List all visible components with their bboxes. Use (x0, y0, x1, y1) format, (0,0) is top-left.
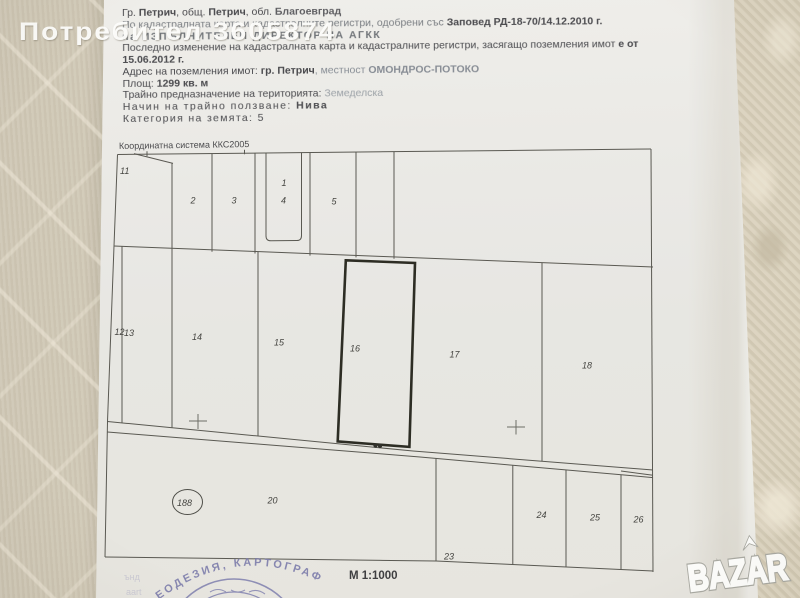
svg-text:14: 14 (192, 332, 202, 342)
svg-text:2: 2 (190, 196, 196, 206)
svg-text:BAZAR: BAZAR (686, 546, 790, 595)
svg-text:15: 15 (274, 338, 285, 348)
svg-text:аart: аart (126, 587, 142, 597)
svg-text:М 1:1000: М 1:1000 (349, 570, 398, 582)
svg-text:5: 5 (332, 197, 338, 207)
svg-text:17: 17 (450, 350, 461, 360)
svg-text:11: 11 (120, 166, 129, 176)
svg-text:12: 12 (115, 327, 125, 337)
svg-text:16: 16 (350, 344, 360, 354)
svg-text:24: 24 (536, 510, 547, 520)
svg-text:1: 1 (282, 178, 287, 188)
svg-text:ънд: ънд (124, 572, 141, 582)
svg-text:25: 25 (589, 513, 601, 523)
svg-text:4: 4 (281, 196, 286, 206)
svg-text:13: 13 (124, 328, 134, 338)
svg-text:18: 18 (582, 361, 592, 371)
svg-text:3: 3 (232, 196, 237, 206)
svg-text:23: 23 (443, 552, 454, 562)
svg-text:188: 188 (177, 498, 192, 508)
svg-text:20: 20 (267, 496, 278, 506)
